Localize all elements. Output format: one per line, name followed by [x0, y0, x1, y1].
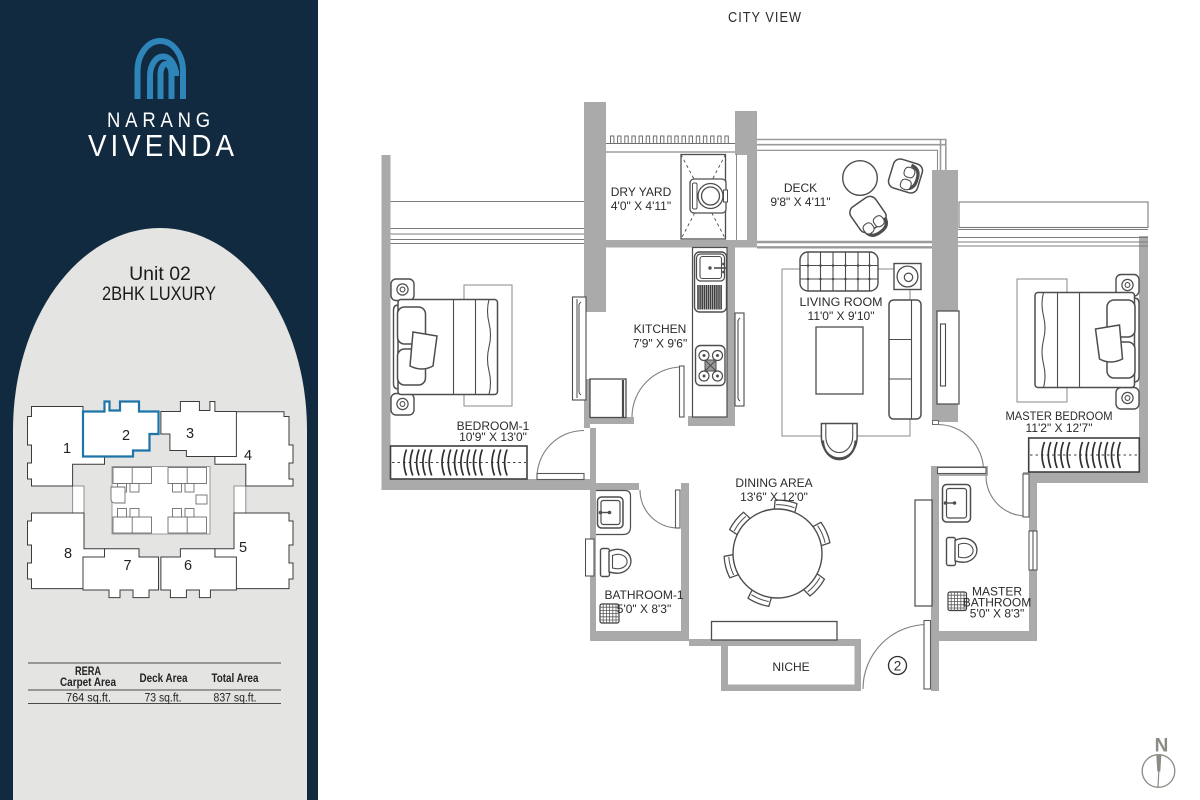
svg-text:KITCHEN: KITCHEN: [634, 322, 687, 336]
svg-text:VIVENDA: VIVENDA: [88, 128, 238, 163]
svg-text:5'0" X 8'3": 5'0" X 8'3": [970, 607, 1024, 621]
svg-text:2: 2: [122, 428, 130, 444]
svg-text:4: 4: [244, 448, 252, 464]
svg-text:1: 1: [63, 441, 71, 457]
svg-text:N: N: [1155, 736, 1169, 757]
svg-text:Total Area: Total Area: [212, 673, 260, 685]
svg-text:Carpet Area: Carpet Area: [60, 677, 117, 689]
svg-text:3: 3: [186, 426, 194, 442]
svg-text:5: 5: [239, 540, 247, 556]
svg-text:BATHROOM-1: BATHROOM-1: [604, 588, 683, 602]
svg-text:6: 6: [184, 558, 192, 574]
svg-text:NICHE: NICHE: [772, 660, 809, 674]
svg-text:73 sq.ft.: 73 sq.ft.: [145, 693, 182, 705]
svg-text:8: 8: [64, 546, 72, 562]
svg-text:5'0" X 8'3": 5'0" X 8'3": [617, 602, 671, 616]
svg-text:11'0" X 9'10": 11'0" X 9'10": [808, 309, 875, 323]
svg-text:DECK: DECK: [784, 181, 817, 195]
svg-text:4'0" X 4'11": 4'0" X 4'11": [611, 199, 671, 213]
svg-text:13'6" X 12'0": 13'6" X 12'0": [740, 490, 808, 504]
svg-text:11'2" X 12'7": 11'2" X 12'7": [1026, 421, 1093, 435]
svg-text:10'9" X 13'0": 10'9" X 13'0": [459, 430, 527, 444]
svg-text:DINING AREA: DINING AREA: [735, 476, 812, 490]
svg-text:2: 2: [894, 659, 902, 674]
svg-text:LIVING ROOM: LIVING ROOM: [800, 295, 883, 309]
svg-text:CITY VIEW: CITY VIEW: [728, 9, 802, 26]
svg-text:2BHK LUXURY: 2BHK LUXURY: [102, 283, 216, 305]
svg-text:Deck Area: Deck Area: [140, 673, 189, 685]
svg-text:7: 7: [123, 558, 131, 574]
svg-text:7'9" X 9'6": 7'9" X 9'6": [633, 337, 687, 351]
svg-text:Unit 02: Unit 02: [129, 263, 191, 285]
svg-text:764 sq.ft.: 764 sq.ft.: [66, 693, 111, 705]
svg-text:DRY YARD: DRY YARD: [611, 185, 672, 199]
svg-text:9'8" X 4'11": 9'8" X 4'11": [770, 195, 830, 209]
svg-text:837 sq.ft.: 837 sq.ft.: [214, 693, 257, 705]
